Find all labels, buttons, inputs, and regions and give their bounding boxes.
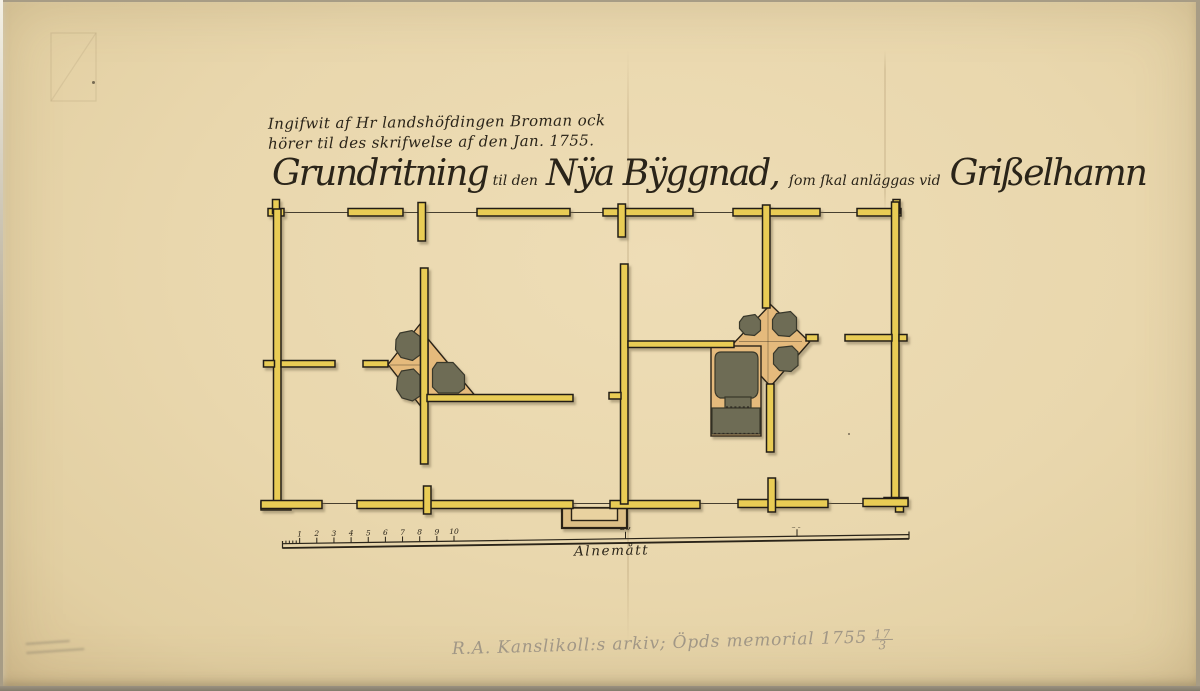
plan-baselines (272, 213, 908, 504)
timber-walls (261, 200, 908, 515)
svg-text:1: 1 (297, 529, 302, 538)
drawing-title: Grundritning til den Nÿa Bÿggnad, ſom ſk… (272, 153, 1146, 194)
scanned-drawing-page: Ingifwit af Hr landshöfdingen Broman ock… (0, 0, 1200, 691)
title-word-grisselhamn: Grißelhamn (950, 153, 1146, 194)
svg-text:30: 30 (792, 527, 803, 531)
scan-edge-bottom (0, 686, 1200, 691)
svg-text:3: 3 (332, 529, 337, 538)
scan-edge-left (0, 0, 3, 430)
hearth-opening (773, 312, 797, 337)
svg-text:2: 2 (313, 529, 319, 538)
left-corner-fireplace (388, 324, 475, 407)
svg-text:8: 8 (417, 528, 422, 537)
svg-text:10: 10 (449, 527, 459, 536)
title-word-tilden: til den (493, 173, 538, 189)
title-word-grundritning: Grundritning (272, 153, 488, 194)
embossed-stamp-mark (42, 28, 104, 108)
hearth-opening (433, 363, 465, 394)
hearth-opening (397, 369, 421, 401)
svg-text:6: 6 (383, 528, 388, 537)
title-word-som-skal: ſom ſkal anläggas vid (789, 173, 941, 189)
svg-text:5: 5 (366, 528, 371, 537)
svg-text:9: 9 (434, 527, 439, 536)
submission-note: Ingifwit af Hr landshöfdingen Broman ock… (268, 110, 606, 154)
hearth-opening (740, 315, 761, 336)
svg-text:4: 4 (348, 529, 354, 538)
scale-unit-label: Alnemått (574, 542, 650, 559)
masonry-and-fireplaces (388, 305, 810, 529)
faint-pencil-smudge (25, 632, 85, 661)
baking-oven (711, 346, 761, 436)
svg-text:7: 7 (400, 528, 405, 537)
paper-speck (92, 81, 95, 84)
svg-text:20: 20 (619, 527, 631, 533)
submission-note-line2: hörer til des skrifwelse af den Jan. 175… (268, 130, 606, 154)
floor-plan-drawing (250, 190, 930, 540)
entrance-porch-step (572, 508, 618, 521)
title-word-nya-byggnad: Nÿa Bÿggnad, (546, 153, 779, 194)
hearth-opening (774, 346, 799, 372)
plan-structure (261, 200, 908, 529)
archive-note-date-fraction: 173 (872, 629, 893, 651)
